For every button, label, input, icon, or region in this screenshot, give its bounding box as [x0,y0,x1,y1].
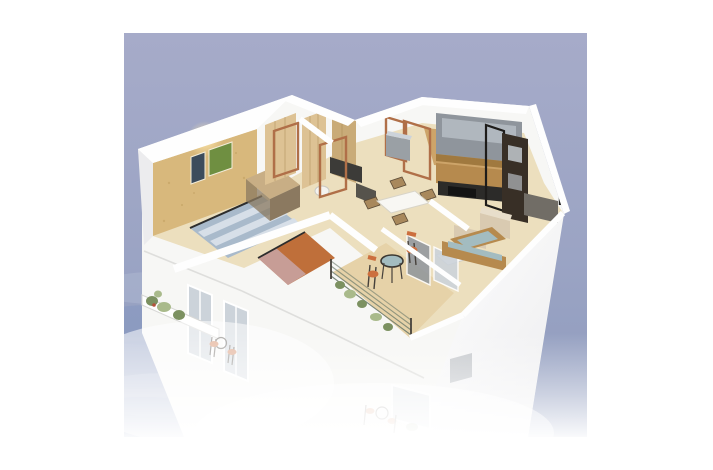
floorplan-render [124,33,587,437]
washing-machine [386,131,412,161]
haze [124,321,587,437]
floorplan-svg [124,33,587,437]
picture-frame-dark [191,152,205,184]
page: { "meta": { "title": "3D isometric cutaw… [0,0,713,470]
